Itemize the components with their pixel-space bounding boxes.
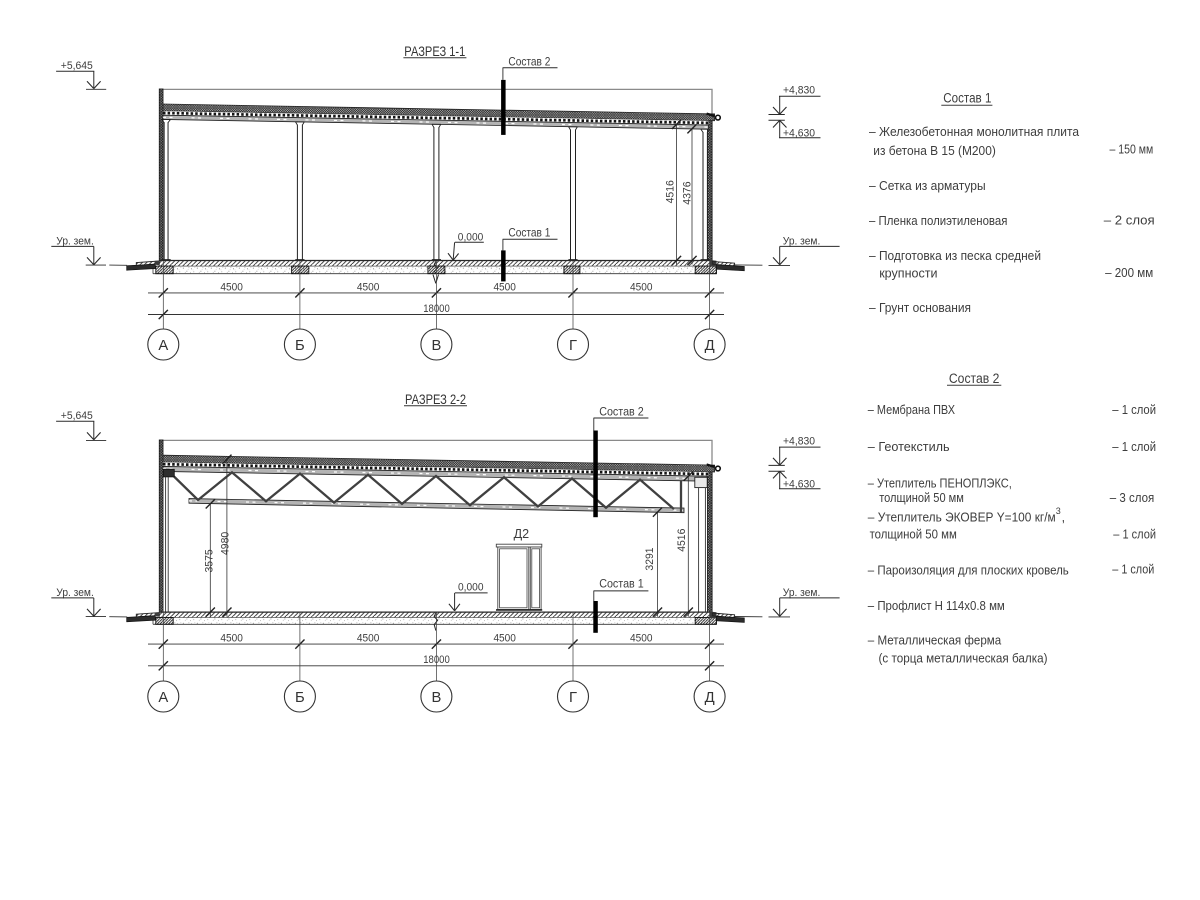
svg-text:4376: 4376: [681, 182, 693, 205]
svg-text:Состав 2: Состав 2: [949, 371, 1000, 386]
svg-text:+4,830: +4,830: [783, 85, 815, 97]
svg-text:4500: 4500: [220, 281, 243, 293]
svg-text:В: В: [431, 690, 441, 706]
svg-text:Состав 2: Состав 2: [508, 54, 550, 68]
svg-text:Б: Б: [295, 690, 305, 706]
svg-text:(с торца металлическая балка): (с торца металлическая балка): [879, 651, 1048, 666]
svg-text:– Металлическая ферма: – Металлическая ферма: [868, 633, 1002, 648]
svg-text:Д2: Д2: [514, 526, 530, 541]
svg-text:– 2 слоя: – 2 слоя: [1104, 212, 1155, 227]
svg-text:– 150 мм: – 150 мм: [1110, 142, 1154, 157]
svg-text:– Мембрана ПВХ: – Мембрана ПВХ: [868, 402, 955, 417]
svg-text:4500: 4500: [493, 281, 516, 293]
svg-text:– Сетка из арматуры: – Сетка из арматуры: [869, 178, 986, 193]
svg-text:– Грунт основания: – Грунт основания: [869, 300, 971, 315]
svg-text:– Пленка полиэтиленовая: – Пленка полиэтиленовая: [869, 213, 1007, 228]
svg-text:– 1 слой: – 1 слой: [1112, 402, 1156, 417]
svg-text:толщиной 50 мм: толщиной 50 мм: [879, 490, 964, 505]
svg-text:Состав 1: Состав 1: [943, 91, 991, 106]
svg-text:из бетона В 15 (М200): из бетона В 15 (М200): [873, 143, 996, 158]
svg-text:4980: 4980: [219, 532, 231, 555]
svg-text:4500: 4500: [357, 281, 380, 293]
svg-text:4500: 4500: [220, 633, 243, 645]
svg-text:Д: Д: [705, 690, 715, 706]
svg-text:3575: 3575: [204, 549, 216, 572]
svg-text:Д: Д: [705, 338, 715, 354]
svg-text:– 1 слой: – 1 слой: [1113, 527, 1156, 542]
svg-text:толщиной 50 мм: толщиной 50 мм: [870, 527, 957, 542]
svg-text:– 1 слой: – 1 слой: [1112, 439, 1156, 454]
svg-text:4500: 4500: [357, 633, 380, 645]
svg-text:Состав 1: Состав 1: [599, 576, 644, 590]
svg-text:0,000: 0,000: [458, 582, 484, 594]
svg-text:3291: 3291: [644, 547, 656, 570]
svg-text:Состав 1: Состав 1: [508, 225, 550, 239]
svg-text:– Железобетонная монолитная п: – Железобетонная монолитная плита: [869, 124, 1080, 139]
svg-text:А: А: [158, 690, 168, 706]
svg-text:– 3 слоя: – 3 слоя: [1110, 490, 1155, 505]
svg-text:4500: 4500: [630, 633, 653, 645]
svg-text:Г: Г: [569, 338, 577, 354]
svg-text:Г: Г: [569, 690, 577, 706]
svg-text:– Профлист Н 114х0.8 мм: – Профлист Н 114х0.8 мм: [868, 598, 1005, 613]
svg-text:+5,645: +5,645: [61, 60, 93, 72]
svg-text:– Утеплитель ЭКОВЕР Y=100 кг/м: – Утеплитель ЭКОВЕР Y=100 кг/м: [868, 510, 1056, 525]
svg-text:– Утеплитель ПЕНОПЛЭКС,: – Утеплитель ПЕНОПЛЭКС,: [868, 476, 1012, 491]
svg-text:,: ,: [1062, 510, 1066, 525]
svg-text:0,000: 0,000: [458, 231, 484, 243]
svg-text:+5,645: +5,645: [61, 410, 93, 422]
svg-text:+4,830: +4,830: [783, 436, 815, 448]
svg-text:3: 3: [1056, 506, 1061, 516]
svg-text:4516: 4516: [676, 529, 688, 552]
svg-text:Состав 2: Состав 2: [599, 404, 644, 418]
svg-text:4516: 4516: [664, 180, 676, 203]
svg-text:В: В: [431, 338, 441, 354]
svg-text:крупности: крупности: [879, 266, 937, 281]
svg-text:4500: 4500: [493, 633, 516, 645]
svg-text:– 200 мм: – 200 мм: [1105, 265, 1153, 280]
svg-text:– Пароизоляция для плоских кро: – Пароизоляция для плоских кровель: [868, 563, 1069, 578]
svg-text:– Подготовка из песка средней: – Подготовка из песка средней: [869, 248, 1041, 263]
svg-text:– 1 слой: – 1 слой: [1112, 562, 1154, 577]
svg-text:4500: 4500: [630, 281, 653, 293]
svg-text:– Геотекстиль: – Геотекстиль: [868, 439, 950, 454]
svg-text:Б: Б: [295, 338, 305, 354]
svg-text:А: А: [158, 338, 168, 354]
